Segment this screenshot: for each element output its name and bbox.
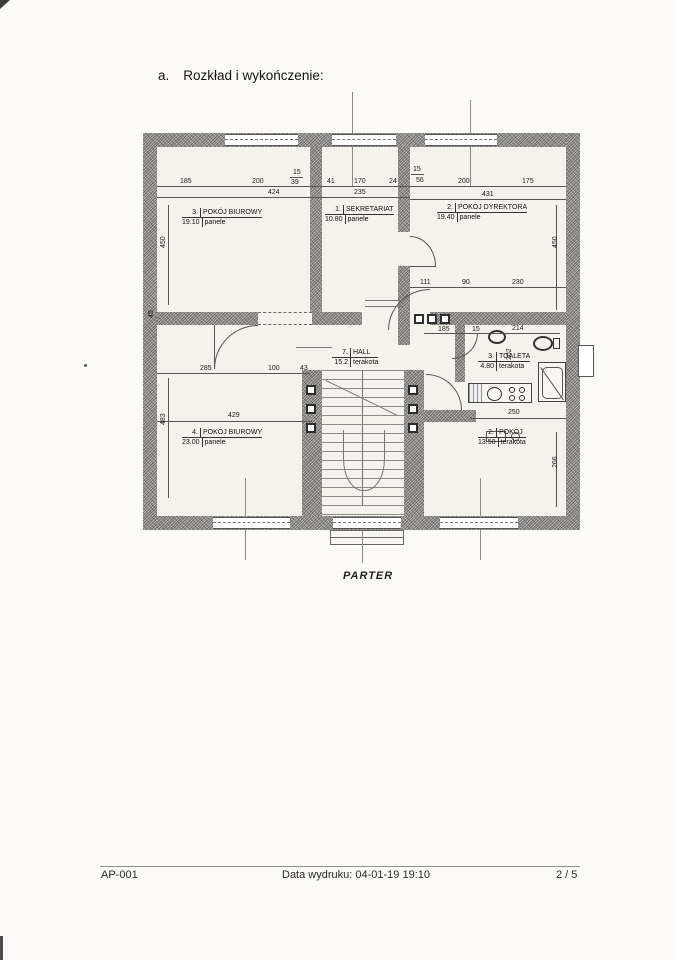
scanned-page: a.Rozkład i wykończenie:: [0, 0, 675, 960]
wall-interior: [430, 312, 566, 325]
dim-line: [410, 186, 566, 187]
wall-interior: [312, 312, 362, 325]
dim-label: 111: [420, 279, 431, 286]
dim-label: 285: [200, 365, 212, 372]
dim-line: [322, 197, 410, 198]
dim-label: 450: [160, 236, 167, 248]
axis-line: [362, 530, 363, 563]
radiator-icon: [306, 385, 316, 395]
dim-label: 41: [327, 178, 335, 185]
room-label-sekretariat: 1.SEKRETARIAT 10.80panele: [325, 205, 394, 224]
dim-label: 429: [228, 412, 240, 419]
window: [440, 517, 518, 529]
dim-label: 170: [354, 178, 366, 185]
footer-divider: [100, 866, 580, 867]
wall-interior: [398, 147, 410, 232]
dim-line: [322, 186, 410, 187]
dim-line: [556, 205, 557, 310]
scan-corner-artifact: [0, 0, 10, 9]
dim-label: 266: [552, 456, 559, 468]
wall-interior: [157, 312, 258, 325]
axis-line: [470, 147, 471, 187]
dim-label: 200: [252, 178, 264, 185]
section-heading: a.Rozkład i wykończenie:: [158, 68, 324, 83]
dim-line: [157, 421, 312, 422]
dim-label: 15: [472, 326, 480, 333]
wall-niche: [578, 345, 594, 377]
dim-fraction-bar: [290, 177, 303, 178]
dim-label: 100: [268, 365, 280, 372]
scan-speck: [84, 364, 87, 367]
dim-label: 43: [300, 365, 308, 372]
dim-label: 39: [291, 179, 299, 186]
wall-opening: [258, 312, 312, 325]
dim-line: [424, 333, 560, 334]
radiator-icon: [440, 314, 450, 324]
dim-label: 15: [293, 169, 301, 176]
wall-left: [143, 133, 157, 530]
room-label-pokoj-biurowy-3: 3.POKÓJ BIUROWY 19.10panele: [182, 208, 262, 227]
scan-edge-artifact: [0, 936, 3, 960]
dim-label: 175: [522, 178, 534, 185]
wall-interior: [424, 410, 476, 422]
dim-line: [168, 205, 169, 305]
footer-doc-id: AP-001: [101, 869, 138, 881]
wall-interior: [310, 147, 322, 312]
door-leaf: [365, 300, 403, 301]
burner-icon: [519, 395, 525, 401]
radiator-icon: [408, 423, 418, 433]
axis-line: [245, 530, 246, 560]
dim-label: 56: [416, 177, 424, 184]
radiator-icon: [408, 404, 418, 414]
dim-label: 45: [148, 310, 155, 318]
dim-line: [556, 432, 557, 507]
dim-line: [157, 186, 322, 187]
toilet-tank-icon: [553, 338, 560, 349]
axis-line: [480, 478, 481, 516]
burner-icon: [509, 387, 515, 393]
door-leaf: [214, 325, 215, 369]
dim-label: 200: [458, 178, 470, 185]
radiator-icon: [306, 404, 316, 414]
dim-label: 214: [512, 325, 524, 332]
dim-label: 185: [180, 178, 192, 185]
dim-fraction-bar: [411, 174, 424, 175]
shower-icon: [538, 362, 566, 402]
kitchenette-hatch: [469, 384, 483, 402]
room-label-pokoj: 2.POKÓJ 13.50terakota: [478, 428, 526, 447]
burner-icon: [519, 387, 525, 393]
axis-line: [245, 478, 246, 516]
dim-line: [157, 373, 310, 374]
dim-line: [470, 418, 566, 419]
window: [225, 134, 298, 146]
window: [425, 134, 497, 146]
dim-label: 185: [438, 326, 450, 333]
radiator-icon: [306, 423, 316, 433]
page-title: Rozkład i wykończenie:: [183, 68, 323, 83]
kitchenette-icon: [468, 383, 532, 403]
floor-name-label: PARTER: [343, 570, 393, 582]
window: [213, 517, 290, 529]
axis-line: [352, 147, 353, 187]
dim-label: 15: [413, 166, 421, 173]
entrance-door: [333, 517, 401, 529]
footer-page-number: 2 / 5: [556, 869, 577, 881]
dim-line: [168, 378, 169, 498]
wall-right: [566, 133, 580, 530]
dim-line: [410, 199, 566, 200]
radiator-icon: [408, 385, 418, 395]
window: [332, 134, 396, 146]
dim-line: [157, 197, 322, 198]
toilet-icon: [533, 336, 553, 351]
footer-print-info: Data wydruku: 04-01-19 19:10: [282, 869, 430, 881]
dim-label: 235: [354, 189, 366, 196]
room-label-hall: 7.HALL 15.2terakota: [332, 348, 378, 367]
burner-icon: [509, 395, 515, 401]
axis-line: [352, 92, 353, 133]
room-label-toaleta: 3.TOALETA 4.80terakota: [478, 352, 530, 371]
dim-label: 250: [508, 409, 520, 416]
section-label: a.: [158, 68, 169, 83]
dim-label: 431: [482, 191, 494, 198]
dim-label: 90: [462, 279, 470, 286]
dim-label: 483: [160, 413, 167, 425]
dim-label: 24: [389, 178, 397, 185]
entrance-steps: [330, 530, 404, 545]
kitchen-sink-bowl-icon: [487, 387, 502, 401]
axis-line: [480, 530, 481, 560]
dim-label: 230: [512, 279, 524, 286]
door-leaf: [410, 266, 436, 267]
axis-line: [470, 100, 471, 133]
dim-label: 450: [552, 236, 559, 248]
room-label-pokoj-biurowy-4: 4.POKÓJ BIUROWY 23.00panele: [182, 428, 262, 447]
dim-label: 424: [268, 189, 280, 196]
room-label-pokoj-dyrektora: 2.POKÓJ DYREKTORA 19.40panele: [437, 203, 527, 222]
door-leaf: [365, 306, 403, 307]
stair-railing: [343, 430, 385, 491]
door-leaf: [296, 347, 332, 348]
dim-line: [410, 287, 566, 288]
